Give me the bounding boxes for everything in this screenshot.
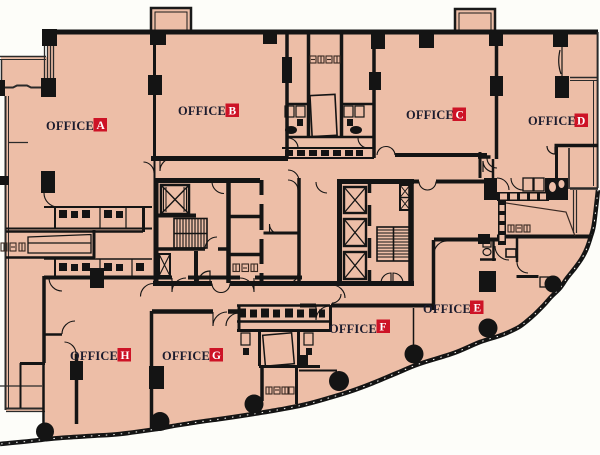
- svg-text:OFFICE: OFFICE: [406, 108, 454, 122]
- svg-text:OFFICE: OFFICE: [162, 349, 210, 363]
- svg-text:C: C: [456, 110, 465, 122]
- svg-text:F: F: [380, 322, 387, 334]
- svg-text:OFFICE: OFFICE: [178, 104, 226, 118]
- svg-text:B: B: [229, 106, 237, 118]
- svg-text:OFFICE: OFFICE: [423, 302, 471, 316]
- svg-text:D: D: [577, 116, 586, 128]
- svg-text:H: H: [121, 350, 130, 362]
- svg-text:E: E: [474, 303, 482, 315]
- svg-text:A: A: [97, 120, 106, 132]
- svg-text:OFFICE: OFFICE: [528, 114, 576, 128]
- svg-text:OFFICE: OFFICE: [329, 322, 377, 336]
- svg-text:OFFICE: OFFICE: [70, 349, 118, 363]
- svg-text:OFFICE: OFFICE: [46, 119, 94, 133]
- svg-text:G: G: [212, 350, 221, 362]
